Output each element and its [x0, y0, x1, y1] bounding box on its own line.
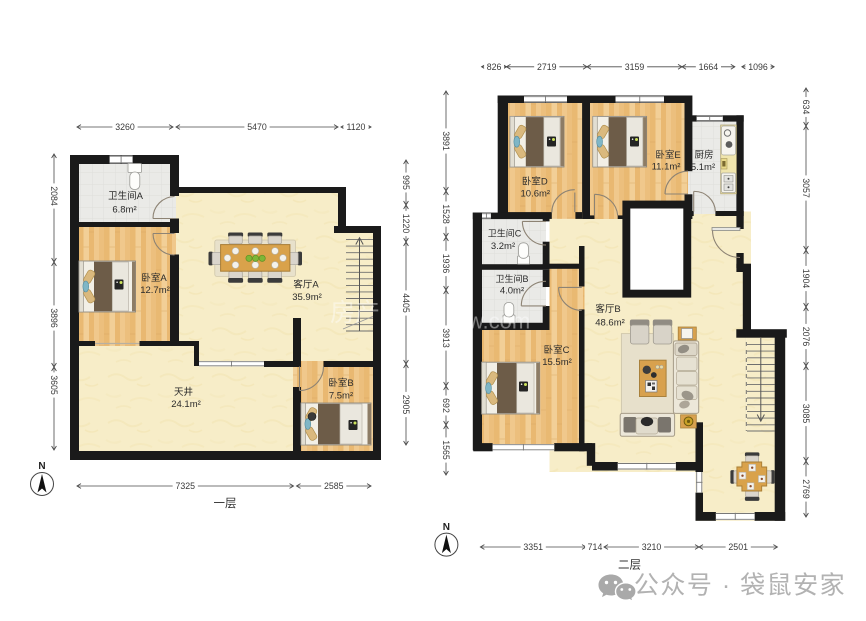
- svg-text:卫生间B: 卫生间B: [495, 273, 528, 284]
- svg-text:w.com: w.com: [467, 309, 530, 334]
- svg-text:826: 826: [487, 62, 502, 72]
- svg-text:12.7m²: 12.7m²: [140, 285, 170, 296]
- svg-text:15.5m²: 15.5m²: [542, 357, 572, 368]
- svg-text:2501: 2501: [728, 542, 748, 552]
- svg-text:48.6m²: 48.6m²: [595, 318, 625, 329]
- svg-text:692: 692: [441, 398, 451, 413]
- svg-text:10.6m²: 10.6m²: [521, 189, 551, 200]
- svg-text:1664: 1664: [699, 62, 719, 72]
- svg-text:2719: 2719: [537, 62, 557, 72]
- svg-text:24.1m²: 24.1m²: [171, 399, 201, 410]
- svg-text:卧室C: 卧室C: [544, 344, 570, 356]
- svg-text:天井: 天井: [174, 386, 193, 398]
- svg-text:1936: 1936: [441, 254, 451, 274]
- svg-text:N: N: [443, 522, 450, 533]
- svg-text:11.1m²: 11.1m²: [652, 162, 681, 173]
- svg-text:2769: 2769: [801, 479, 811, 499]
- svg-text:2076: 2076: [801, 327, 811, 347]
- svg-text:4405: 4405: [401, 293, 411, 313]
- svg-text:6.8m²: 6.8m²: [112, 205, 136, 216]
- svg-text:厨房: 厨房: [694, 149, 713, 161]
- svg-text:35.9m²: 35.9m²: [292, 292, 322, 303]
- svg-text:卫生间A: 卫生间A: [108, 190, 144, 202]
- svg-text:卧室D: 卧室D: [522, 176, 548, 188]
- svg-text:公众号 · 袋鼠安家: 公众号 · 袋鼠安家: [634, 572, 846, 600]
- svg-text:1096: 1096: [748, 62, 768, 72]
- svg-text:634: 634: [801, 100, 811, 115]
- svg-text:1904: 1904: [801, 269, 811, 289]
- svg-text:2084: 2084: [49, 186, 59, 206]
- svg-text:房产: 房产: [330, 299, 380, 327]
- svg-text:卧室B: 卧室B: [328, 377, 353, 389]
- svg-text:3891: 3891: [441, 131, 451, 151]
- svg-text:1220: 1220: [401, 214, 411, 234]
- svg-text:7325: 7325: [175, 481, 195, 491]
- svg-text:3605: 3605: [49, 375, 59, 395]
- svg-text:卫生间C: 卫生间C: [488, 228, 522, 239]
- svg-text:3260: 3260: [115, 122, 135, 132]
- svg-text:3210: 3210: [642, 542, 662, 552]
- svg-text:客厅A: 客厅A: [293, 279, 319, 291]
- svg-text:3.2m²: 3.2m²: [491, 241, 515, 252]
- svg-text:4.0m²: 4.0m²: [500, 286, 524, 297]
- svg-text:995: 995: [401, 175, 411, 190]
- svg-text:5470: 5470: [247, 122, 267, 132]
- svg-text:客厅B: 客厅B: [595, 303, 620, 315]
- svg-text:3085: 3085: [801, 404, 811, 424]
- svg-text:二层: 二层: [618, 559, 641, 572]
- svg-text:5.1m²: 5.1m²: [691, 162, 715, 173]
- svg-text:3351: 3351: [523, 542, 543, 552]
- svg-text:2585: 2585: [324, 481, 344, 491]
- svg-text:2905: 2905: [401, 395, 411, 415]
- svg-text:N: N: [38, 461, 45, 472]
- svg-text:7.5m²: 7.5m²: [329, 391, 353, 402]
- svg-text:1565: 1565: [441, 440, 451, 460]
- svg-text:卧室A: 卧室A: [141, 272, 167, 284]
- svg-text:3159: 3159: [625, 62, 645, 72]
- svg-text:3057: 3057: [801, 178, 811, 198]
- svg-text:卧室E: 卧室E: [655, 149, 680, 161]
- svg-text:1528: 1528: [441, 204, 451, 224]
- svg-text:3896: 3896: [49, 308, 59, 328]
- svg-text:714: 714: [588, 542, 603, 552]
- svg-text:3913: 3913: [441, 328, 451, 348]
- svg-text:一层: 一层: [214, 497, 237, 510]
- svg-text:1120: 1120: [347, 122, 366, 132]
